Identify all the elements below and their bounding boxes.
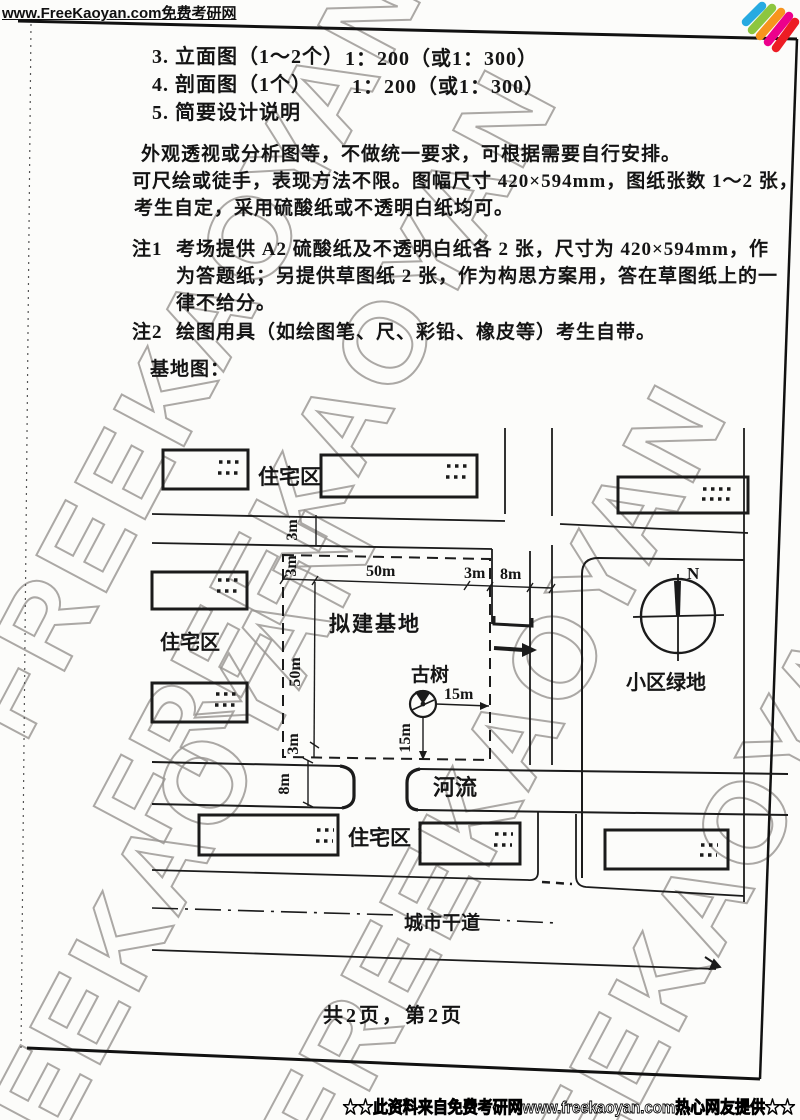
old-tree-label: 古树 [411,663,449,686]
list-item-4-scale: 1：200（或1：300） [352,70,545,99]
paragraph-line: 外观透视或分析图等，不做统一要求，可根据需要自行安排。 [141,139,681,166]
page-number: 共2页，第2页 [323,999,464,1028]
note1-marker: 注1 [132,234,163,261]
list-item-3-scale: 1：200（或1：300） [345,42,538,71]
dim-east-setback: 3m [464,565,486,582]
residential-bottom-label: 住宅区 [348,826,411,850]
residential-top-label: 住宅区 [258,465,321,489]
note2-marker: 注2 [132,317,163,344]
note1-line: 为答题纸；另提供草图纸 2 张，作为构思方案用，答在草图纸上的一 [176,261,778,288]
north-needle [674,581,681,616]
scanned-exam-page: FREEKAOYAN FREEKAOYAN FREEKAOYAN FREEKAO… [0,0,800,1120]
dim-south-setback: 3m [285,733,302,755]
main-road-label: 城市干道 [404,911,480,934]
dim-north-setback-a: 3m [284,519,301,541]
site-map-heading: 基地图： [150,354,230,381]
paragraph-line: 考生自定，采用硫酸纸或不透明白纸均可。 [134,193,514,220]
list-item-5: 5. 简要设计说明 [152,96,301,125]
source-banner: ★★此资料来自免费考研网www.freekaoyan.com热心网友提供★★ [343,1097,795,1117]
green-space-label: 小区绿地 [626,670,706,694]
dim-tree-east: 15m [444,686,474,703]
freekaoyan-logo [746,6,795,48]
list-item-3: 3. 立面图（1～2个） [152,40,344,69]
list-item-4: 4. 剖面图（1个） [152,68,312,97]
river-label: 河流 [433,775,477,800]
dim-river-width: 8m [276,773,293,795]
north-label: N [687,564,700,583]
residential-left-label: 住宅区 [160,630,220,654]
note1-line: 律不给分。 [176,288,276,315]
proposed-site-label: 拟建基地 [329,612,421,636]
paragraph-line: 可尺绘或徒手，表现方法不限。图幅尺寸 420×594mm，图纸张数 1～2 张， [132,166,799,193]
dim-site-depth: 50m [287,657,304,687]
note1-line: 考场提供 A2 硫酸纸及不透明白纸各 2 张，尺寸为 420×594mm，作 [176,234,769,261]
bridge-abutment [340,766,354,808]
note2-line: 绘图用具（如绘图笔、尺、彩铅、橡皮等）考生自带。 [176,317,656,344]
dim-road-width: 8m [500,566,522,583]
dim-tree-south: 15m [397,723,414,753]
dim-site-width: 50m [366,563,396,580]
dim-north-setback-b: 3m [283,555,300,577]
site-header-link[interactable]: www.FreeKaoyan.com免费考研网 [2,2,237,23]
